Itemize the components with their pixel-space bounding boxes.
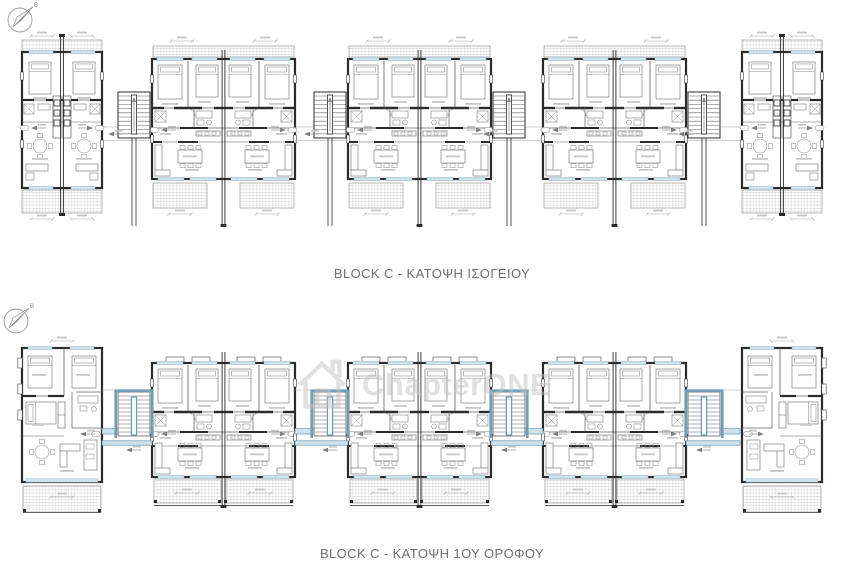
floorplan-canvas: ΒΒ BLOCK C - ΚΑΤΟΨΗ ΙΣΟΓΕΙΟΥ BLOCK C - Κ… — [0, 0, 864, 575]
first-floor-title: BLOCK C - ΚΑΤΟΨΗ 1ΟΥ ΟΡΟΦΟΥ — [0, 546, 864, 561]
end-unit-block-first — [742, 337, 826, 513]
svg-text:Β: Β — [34, 3, 38, 9]
end-unit-block-ground — [740, 32, 824, 221]
staircase-first — [686, 390, 740, 452]
staircase-ground — [295, 92, 348, 226]
staircase-first — [102, 390, 152, 452]
north-arrow-icon: Β — [4, 304, 34, 333]
ground-floor-title: BLOCK C - ΚΑΤΟΨΗ ΙΣΟΓΕΙΟΥ — [0, 266, 864, 281]
twin-unit-block-first — [150, 352, 297, 508]
end-unit-block-ground — [20, 32, 104, 221]
twin-unit-block-first — [346, 352, 493, 508]
twin-unit-block-ground — [150, 37, 297, 227]
staircase-ground — [678, 92, 740, 226]
svg-text:Β: Β — [30, 304, 34, 310]
staircase-first — [491, 390, 543, 452]
first-floor-plan-row: Β — [4, 304, 826, 513]
end-unit-block-first — [18, 337, 102, 513]
staircase-ground — [102, 92, 152, 226]
north-arrow-icon: Β — [8, 3, 38, 32]
twin-unit-block-ground — [346, 37, 493, 227]
twin-unit-block-ground — [541, 37, 688, 227]
twin-unit-block-first — [541, 352, 688, 508]
staircase-first — [295, 390, 348, 452]
ground-floor-plan-row: Β — [8, 3, 824, 227]
floorplan-drawing: ΒΒ — [0, 0, 864, 575]
